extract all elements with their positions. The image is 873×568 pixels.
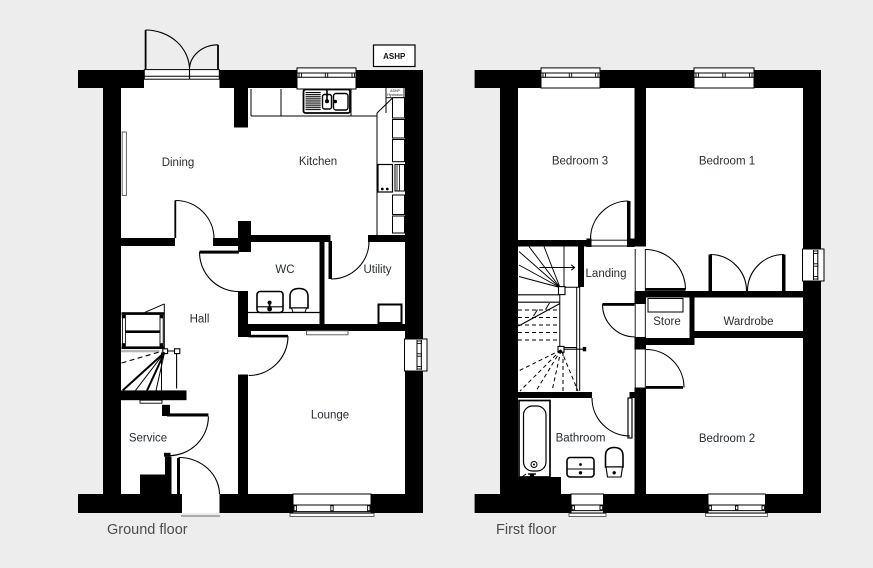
svg-text:Landing: Landing: [586, 268, 627, 280]
svg-text:Bedroom 3: Bedroom 3: [552, 156, 608, 168]
svg-text:Wardrobe: Wardrobe: [723, 316, 773, 328]
svg-text:Utility: Utility: [363, 264, 391, 276]
svg-text:ASHP: ASHP: [383, 52, 406, 61]
svg-text:Store: Store: [653, 316, 681, 328]
svg-text:Ground floor: Ground floor: [107, 522, 188, 538]
svg-text:Kitchen: Kitchen: [299, 156, 337, 168]
svg-text:Bathroom: Bathroom: [556, 433, 606, 445]
svg-text:Hydrobox: Hydrobox: [387, 93, 403, 97]
svg-text:First floor: First floor: [496, 522, 557, 538]
svg-text:Bedroom 2: Bedroom 2: [699, 433, 755, 445]
svg-text:Dining: Dining: [162, 157, 195, 169]
svg-text:Service: Service: [129, 433, 167, 445]
svg-text:WC: WC: [275, 264, 294, 276]
svg-text:Lounge: Lounge: [311, 410, 349, 422]
svg-text:Bedroom 1: Bedroom 1: [699, 156, 755, 168]
svg-text:Hall: Hall: [190, 314, 210, 326]
